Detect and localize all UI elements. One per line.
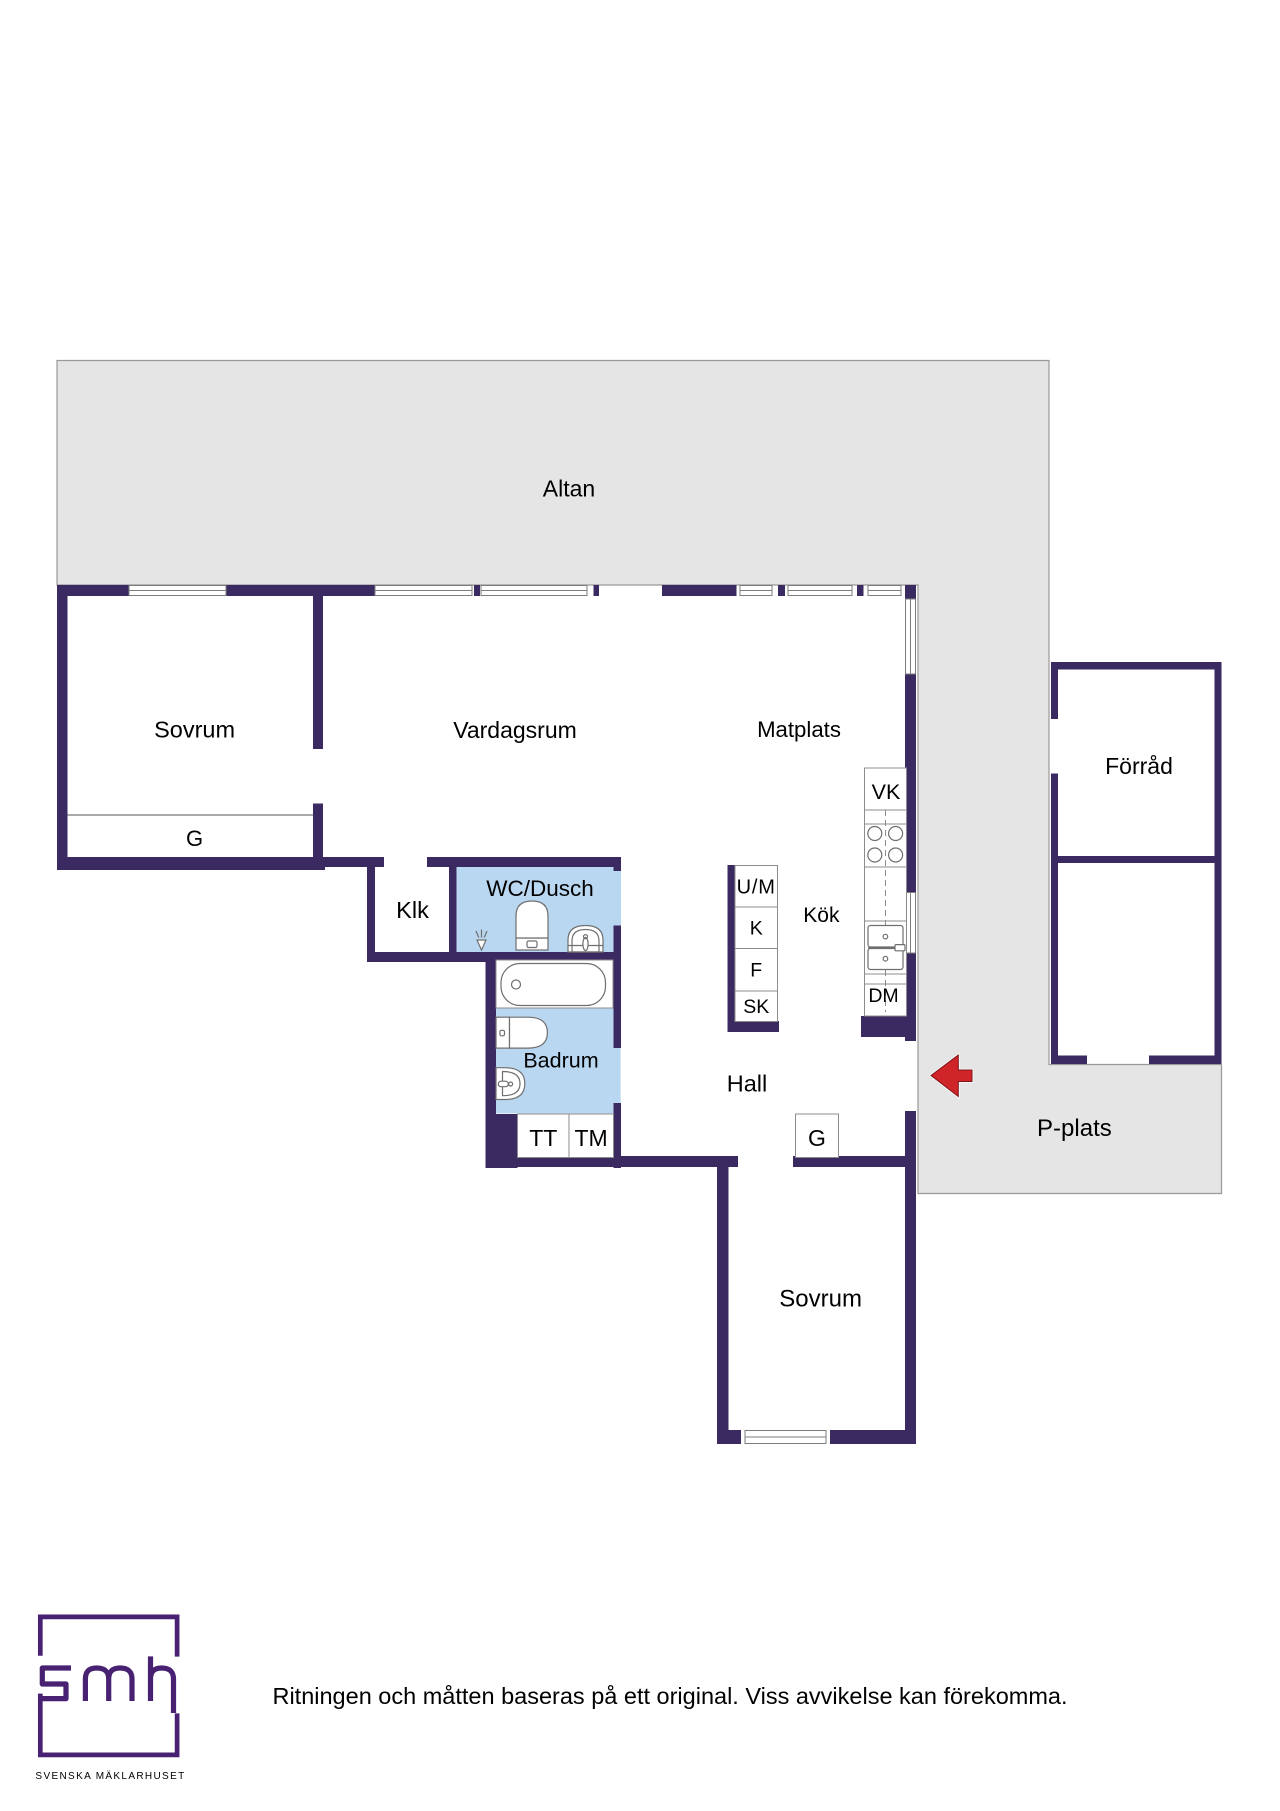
svg-text:Sovrum: Sovrum [154, 717, 235, 743]
svg-text:Klk: Klk [396, 897, 429, 923]
svg-text:Kök: Kök [803, 904, 840, 927]
svg-text:Altan: Altan [543, 476, 595, 502]
svg-text:SK: SK [743, 996, 769, 1018]
svg-text:VK: VK [872, 780, 901, 804]
svg-text:Sovrum: Sovrum [779, 1286, 862, 1313]
svg-text:DM: DM [868, 985, 898, 1007]
svg-text:Hall: Hall [727, 1071, 767, 1097]
svg-text:Förråd: Förråd [1105, 753, 1173, 779]
svg-text:SVENSKA MÄKLARHUSET: SVENSKA MÄKLARHUSET [35, 1770, 185, 1782]
svg-text:G: G [808, 1125, 826, 1151]
svg-text:K: K [750, 918, 763, 940]
svg-text:U/M: U/M [737, 877, 776, 899]
svg-text:WC/Dusch: WC/Dusch [486, 876, 594, 901]
svg-text:F: F [750, 959, 762, 981]
svg-text:Ritningen och måtten baseras p: Ritningen och måtten baseras på ett orig… [272, 1683, 1067, 1709]
svg-text:P-plats: P-plats [1037, 1115, 1112, 1142]
svg-text:Matplats: Matplats [757, 717, 841, 742]
svg-text:Vardagsrum: Vardagsrum [453, 717, 577, 743]
svg-text:TM: TM [574, 1125, 607, 1151]
svg-text:TT: TT [529, 1125, 557, 1151]
svg-text:Badrum: Badrum [523, 1049, 598, 1073]
svg-text:G: G [186, 826, 203, 851]
